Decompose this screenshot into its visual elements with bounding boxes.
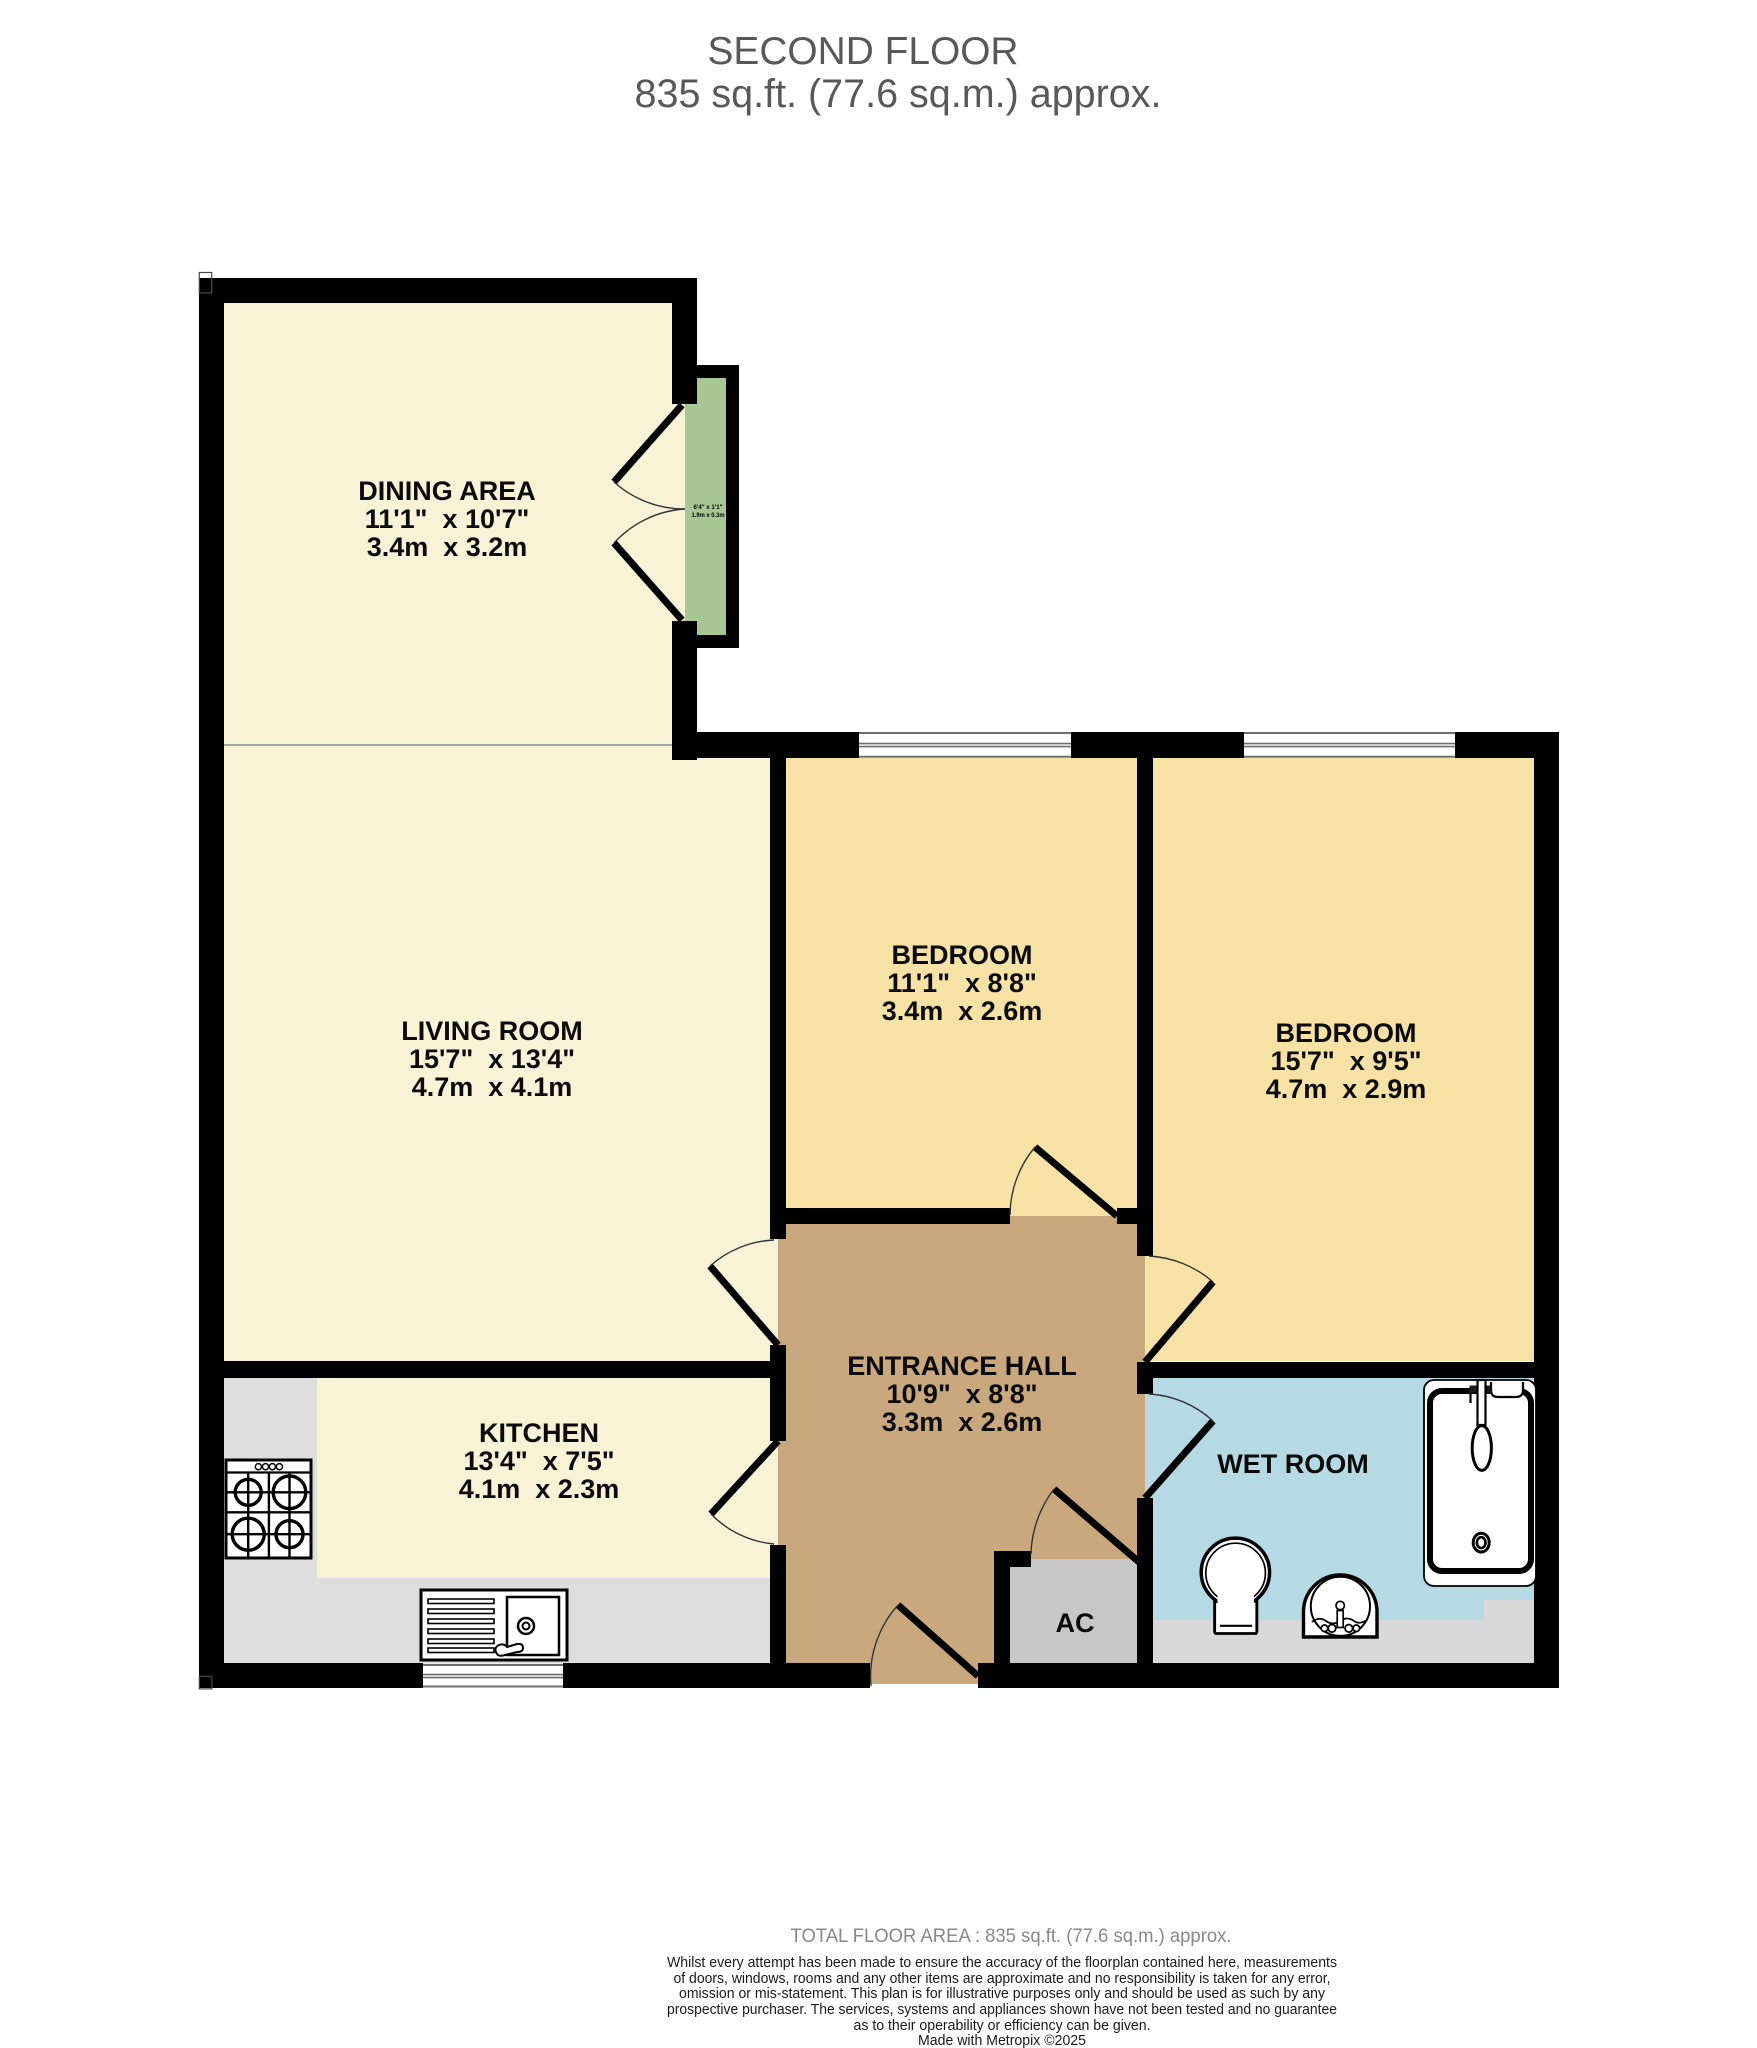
svg-text:prospective purchaser. The ser: prospective purchaser. The services, sys…: [667, 2002, 1337, 2018]
svg-text:AC: AC: [1056, 1608, 1095, 1638]
svg-text:Whilst every attempt has been: Whilst every attempt has been made to en…: [667, 1955, 1337, 1971]
svg-text:as to their operability or eff: as to their operability or efficiency ca…: [854, 2018, 1151, 2034]
svg-text:KITCHEN: KITCHEN: [479, 1418, 599, 1448]
svg-text:13'4" x 7'5": 13'4" x 7'5": [463, 1446, 614, 1476]
svg-text:3.3m x 2.6m: 3.3m x 2.6m: [882, 1407, 1043, 1437]
svg-text:4.1m x 2.3m: 4.1m x 2.3m: [459, 1474, 620, 1504]
svg-text:ENTRANCE HALL: ENTRANCE HALL: [847, 1351, 1077, 1381]
svg-text:4.7m x 4.1m: 4.7m x 4.1m: [412, 1072, 573, 1102]
svg-text:LIVING ROOM: LIVING ROOM: [401, 1016, 583, 1046]
svg-text:1.9m x 0.3m: 1.9m x 0.3m: [692, 512, 725, 519]
svg-text:6'4" x 1'1": 6'4" x 1'1": [694, 504, 723, 511]
svg-text:DINING AREA: DINING AREA: [358, 476, 536, 506]
svg-text:BEDROOM: BEDROOM: [1276, 1018, 1417, 1048]
svg-text:10'9" x 8'8": 10'9" x 8'8": [886, 1379, 1037, 1409]
svg-text:15'7" x 9'5": 15'7" x 9'5": [1270, 1046, 1421, 1076]
svg-text:SECOND FLOOR: SECOND FLOOR: [708, 30, 1019, 73]
svg-text:3.4m x 2.6m: 3.4m x 2.6m: [882, 996, 1043, 1026]
svg-text:4.7m x 2.9m: 4.7m x 2.9m: [1266, 1074, 1427, 1104]
svg-text:Made with Metropix ©2025: Made with Metropix ©2025: [918, 2033, 1086, 2048]
svg-text:835 sq.ft. (77.6 sq.m.) approx: 835 sq.ft. (77.6 sq.m.) approx.: [635, 72, 1162, 116]
svg-text:of doors, windows, rooms and a: of doors, windows, rooms and any other i…: [674, 1971, 1331, 1987]
svg-text:TOTAL FLOOR AREA : 835 sq.ft.: TOTAL FLOOR AREA : 835 sq.ft. (77.6 sq.m…: [791, 1925, 1232, 1947]
svg-text:15'7" x 13'4": 15'7" x 13'4": [409, 1044, 575, 1074]
svg-text:omission or mis-statement. Thi: omission or mis-statement. This plan is …: [679, 1986, 1326, 2002]
svg-text:11'1" x 8'8": 11'1" x 8'8": [887, 968, 1037, 998]
svg-text:3.4m x 3.2m: 3.4m x 3.2m: [367, 532, 528, 562]
svg-text:11'1" x 10'7": 11'1" x 10'7": [365, 504, 530, 534]
svg-text:WET ROOM: WET ROOM: [1217, 1449, 1368, 1479]
svg-text:BEDROOM: BEDROOM: [892, 940, 1033, 970]
